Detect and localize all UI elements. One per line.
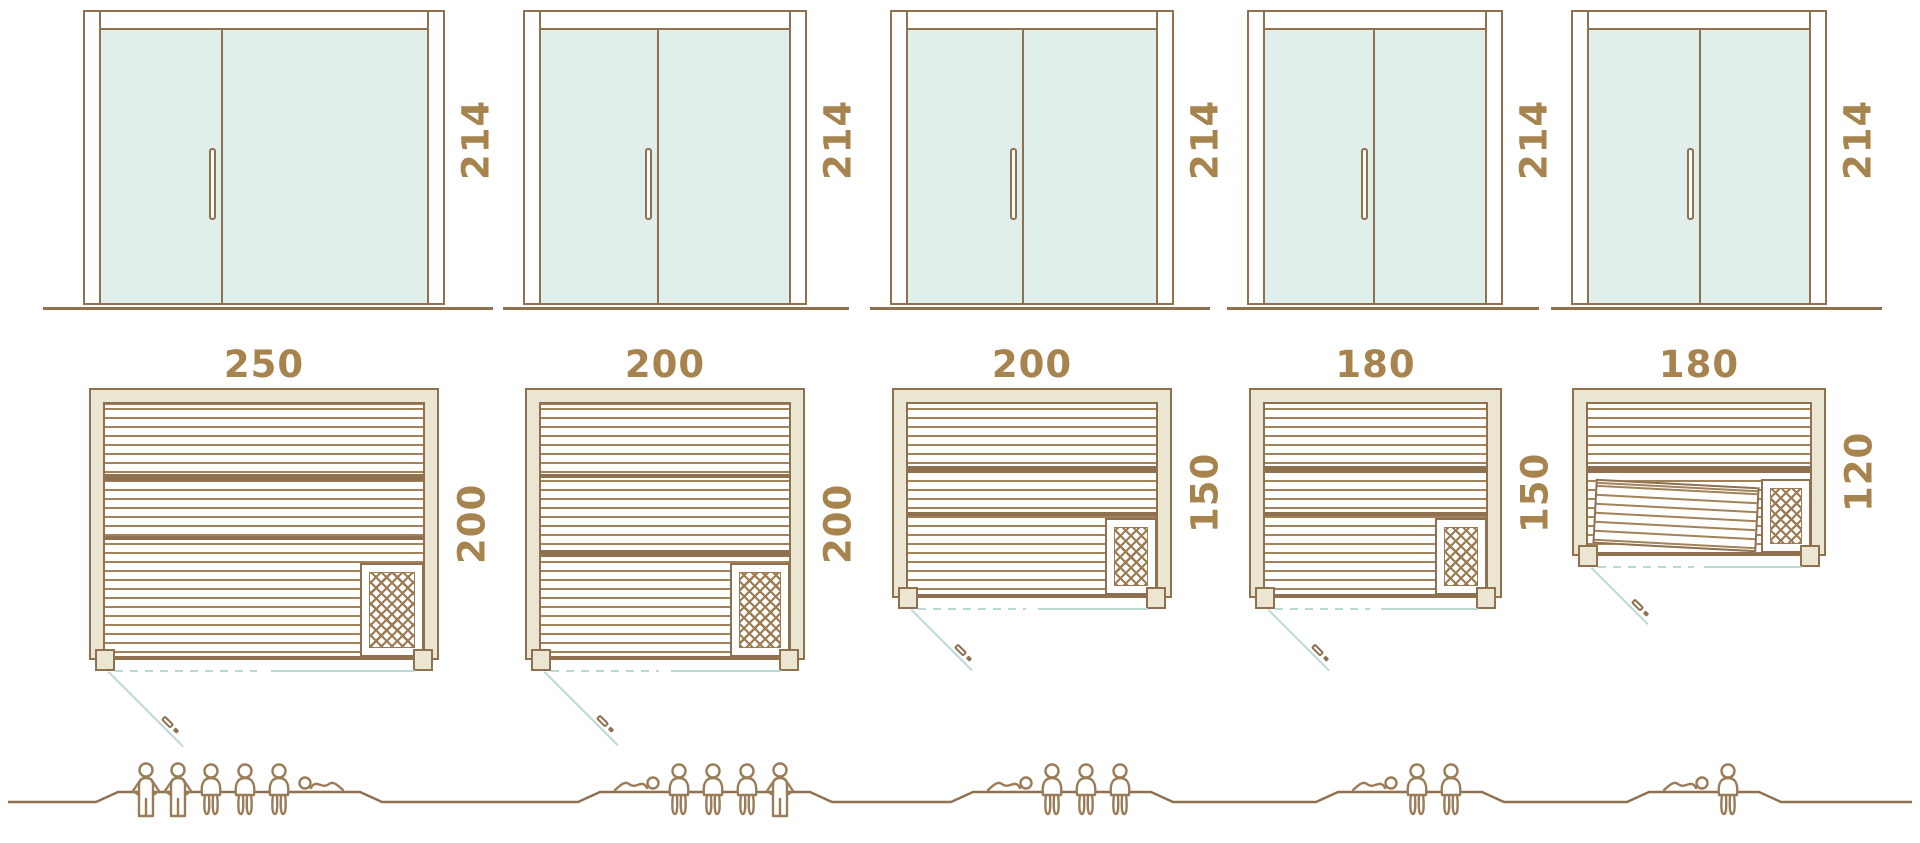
door-handle-icon — [1687, 148, 1694, 220]
door-divider — [1373, 28, 1375, 305]
door-track-dashed-line — [1598, 566, 1694, 568]
person-sitting-icon — [236, 765, 255, 815]
handle-tip — [1643, 610, 1649, 616]
heater-grid-icon — [1114, 527, 1148, 586]
plan-depth-label: 200 — [817, 464, 859, 584]
person-lying-icon — [988, 778, 1032, 791]
plan-interior — [1586, 402, 1812, 554]
bench-edge-line — [541, 474, 789, 478]
tilted-bench — [1592, 479, 1759, 552]
person-sitting-icon — [670, 765, 689, 815]
door-glass — [1263, 28, 1487, 305]
door-handle-icon — [645, 148, 652, 220]
person-sitting-icon — [738, 765, 757, 815]
door-left-post — [83, 10, 101, 305]
heater-box — [1105, 518, 1157, 595]
door-ground-line — [1551, 307, 1882, 310]
door-track-line — [271, 670, 415, 672]
door-left-post — [1571, 10, 1589, 305]
door-ground-line — [1227, 307, 1539, 310]
heater-box — [360, 563, 424, 657]
plan-depth-label: 120 — [1838, 412, 1880, 532]
bench-edge-line — [105, 474, 423, 481]
heater-grid-icon — [739, 572, 781, 648]
capacity-figures-layer — [0, 725, 1920, 843]
bench-edge-line — [908, 512, 1156, 516]
plan-right-foot — [1800, 545, 1820, 567]
person-sitting-icon — [202, 765, 221, 815]
plan-left-foot — [898, 587, 918, 609]
door-right-post — [1156, 10, 1174, 305]
door-ground-line — [503, 307, 849, 310]
person-standing-icon — [767, 764, 793, 817]
plan-left-foot — [1255, 587, 1275, 609]
heater-grid-icon — [369, 572, 415, 648]
handle-tip — [1323, 655, 1329, 661]
door-header — [1587, 10, 1811, 30]
person-sitting-icon — [1043, 765, 1062, 815]
door-height-label: 214 — [1184, 80, 1226, 200]
door-right-post — [1809, 10, 1827, 305]
plan-right-foot — [1146, 587, 1166, 609]
door-track-dashed-line — [551, 670, 659, 672]
person-standing-icon — [165, 764, 191, 817]
door-divider — [221, 28, 223, 305]
door-elevation — [890, 10, 1174, 305]
sauna-sizes-diagram: 2142502002142002002142001502141801502141… — [0, 0, 1920, 843]
plan-width-label: 200 — [892, 344, 1172, 384]
bench-edge-line — [1265, 512, 1486, 516]
person-lying-icon — [1664, 778, 1708, 791]
heater-box — [730, 563, 790, 657]
plan-left-foot — [531, 649, 551, 671]
door-track-line — [671, 670, 781, 672]
door-track-dashed-line — [1275, 608, 1370, 610]
door-ground-line — [870, 307, 1210, 310]
person-standing-icon — [133, 764, 159, 817]
door-handle-icon — [1361, 148, 1368, 220]
door-glass — [539, 28, 791, 305]
heater-grid-icon — [1444, 527, 1478, 586]
bench-edge-line — [1588, 466, 1810, 473]
door-divider — [1699, 28, 1701, 305]
person-lying-icon — [615, 778, 659, 791]
door-elevation — [1247, 10, 1503, 305]
plan-left-foot — [95, 649, 115, 671]
heater-box — [1761, 479, 1811, 553]
handle-tip — [173, 727, 179, 733]
person-sitting-icon — [1111, 765, 1130, 815]
floor-plan — [1572, 388, 1826, 556]
door-left-post — [523, 10, 541, 305]
door-height-label: 214 — [817, 80, 859, 200]
door-track-line — [1704, 566, 1802, 568]
plan-width-label: 250 — [89, 344, 439, 384]
person-sitting-icon — [1442, 765, 1461, 815]
plan-interior — [539, 402, 791, 658]
door-ground-line — [43, 307, 493, 310]
person-sitting-icon — [270, 765, 289, 815]
person-sitting-icon — [704, 765, 723, 815]
door-left-post — [890, 10, 908, 305]
plan-left-foot — [1578, 545, 1598, 567]
door-right-post — [1485, 10, 1503, 305]
handle-tip — [966, 655, 972, 661]
door-glass — [99, 28, 429, 305]
door-header — [99, 10, 429, 30]
door-handle-icon — [209, 148, 216, 220]
plan-width-label: 180 — [1249, 344, 1502, 384]
person-sitting-icon — [1719, 765, 1738, 815]
door-height-label: 214 — [455, 80, 497, 200]
open-door-line — [911, 609, 973, 671]
door-header — [539, 10, 791, 30]
door-divider — [1022, 28, 1024, 305]
door-divider — [657, 28, 659, 305]
person-sitting-icon — [1408, 765, 1427, 815]
door-track-dashed-line — [918, 608, 1026, 610]
heater-grid-icon — [1770, 488, 1802, 544]
door-track-line — [1038, 608, 1148, 610]
capacity-group — [133, 764, 343, 817]
plan-right-foot — [779, 649, 799, 671]
plan-right-foot — [413, 649, 433, 671]
plan-depth-label: 200 — [451, 464, 493, 584]
door-left-post — [1247, 10, 1265, 305]
door-right-post — [427, 10, 445, 305]
plan-depth-label: 150 — [1514, 433, 1556, 553]
bench-edge-line — [908, 466, 1156, 473]
floor-plan — [892, 388, 1172, 598]
handle-tip — [608, 726, 614, 732]
floor-plan — [1249, 388, 1502, 598]
capacity-group — [988, 765, 1129, 815]
floor-plan — [89, 388, 439, 660]
door-height-label: 214 — [1837, 80, 1879, 200]
plan-interior — [1263, 402, 1488, 596]
plan-width-label: 200 — [525, 344, 805, 384]
plan-interior — [906, 402, 1158, 596]
door-right-post — [789, 10, 807, 305]
open-door-line — [1591, 567, 1649, 625]
capacity-group — [1664, 765, 1737, 815]
bench-edge-line — [1265, 466, 1486, 473]
door-elevation — [1571, 10, 1827, 305]
door-height-label: 214 — [1513, 80, 1555, 200]
door-track-line — [1381, 608, 1478, 610]
plan-width-label: 180 — [1572, 344, 1826, 384]
plan-right-foot — [1476, 587, 1496, 609]
plan-interior — [103, 402, 425, 658]
door-glass — [906, 28, 1158, 305]
ground-profile-line — [8, 792, 1912, 802]
open-door-line — [1268, 609, 1330, 671]
capacity-group — [1353, 765, 1460, 815]
door-handle-icon — [1010, 148, 1017, 220]
plan-depth-label: 150 — [1184, 433, 1226, 553]
person-lying-icon — [300, 778, 344, 791]
bench-edge-line — [105, 536, 423, 540]
door-header — [1263, 10, 1487, 30]
bench-edge-line — [541, 550, 789, 557]
heater-box — [1435, 518, 1487, 595]
door-elevation — [83, 10, 445, 305]
door-track-dashed-line — [115, 670, 257, 672]
person-lying-icon — [1353, 778, 1397, 791]
door-header — [906, 10, 1158, 30]
capacity-group — [615, 764, 793, 817]
floor-plan — [525, 388, 805, 660]
door-elevation — [523, 10, 807, 305]
person-sitting-icon — [1077, 765, 1096, 815]
